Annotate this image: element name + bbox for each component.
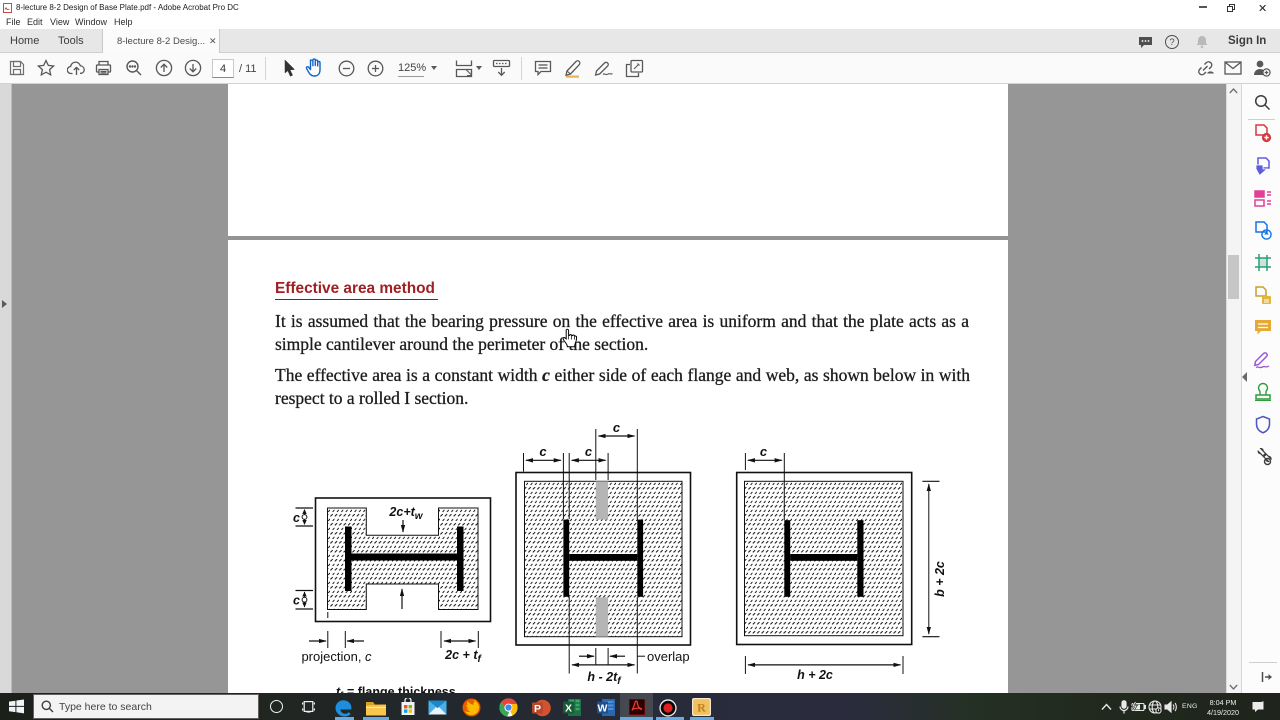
svg-text:R: R <box>697 701 706 715</box>
svg-text:c: c <box>585 444 593 459</box>
svg-text:overlap: overlap <box>647 649 690 664</box>
svg-text:W: W <box>598 703 608 715</box>
svg-text:2c + tf: 2c + tf <box>444 648 482 665</box>
svg-text:c: c <box>760 444 768 459</box>
svg-text:c: c <box>613 420 621 435</box>
svg-text:h - 2tf: h - 2tf <box>587 670 622 687</box>
svg-text:h + 2c: h + 2c <box>797 668 833 682</box>
svg-text:tf = flange thickness: tf = flange thickness <box>336 685 456 693</box>
svg-text:c: c <box>293 594 300 608</box>
svg-text:P: P <box>534 703 541 715</box>
svg-text:c: c <box>539 444 547 459</box>
svg-text:X: X <box>565 703 572 715</box>
svg-text:c: c <box>293 511 300 525</box>
svg-text:projection, c: projection, c <box>301 649 372 664</box>
svg-text:b + 2c: b + 2c <box>933 561 947 597</box>
